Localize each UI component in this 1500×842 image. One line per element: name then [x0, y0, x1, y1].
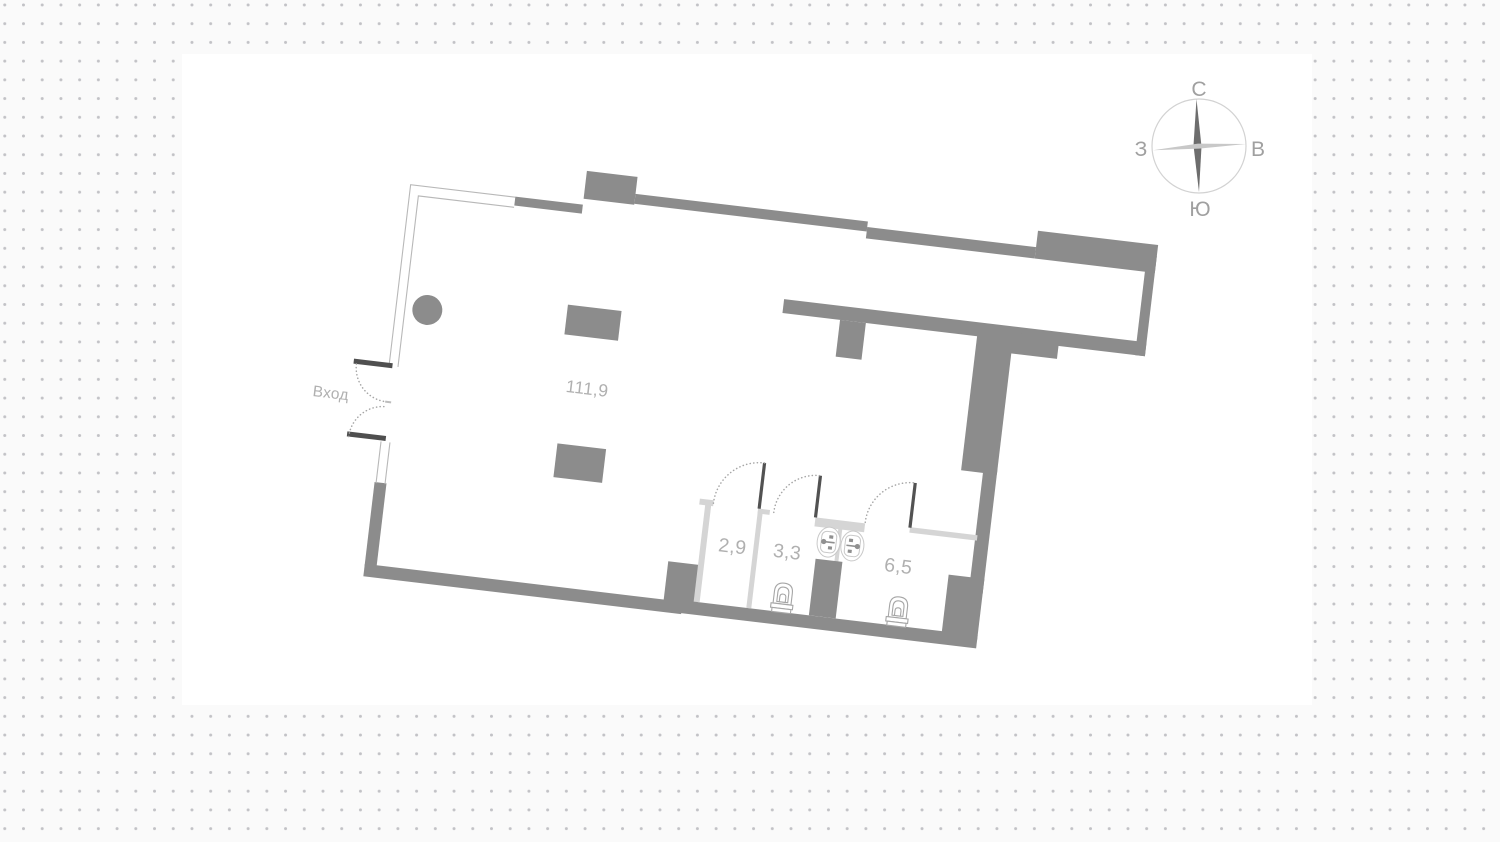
svg-text:С: С: [1191, 78, 1206, 101]
svg-text:6,5: 6,5: [883, 554, 913, 579]
svg-text:Ю: Ю: [1189, 198, 1210, 221]
svg-text:В: В: [1251, 138, 1265, 161]
svg-text:2,9: 2,9: [717, 534, 747, 559]
svg-text:З: З: [1135, 138, 1148, 161]
svg-text:3,3: 3,3: [772, 540, 802, 565]
